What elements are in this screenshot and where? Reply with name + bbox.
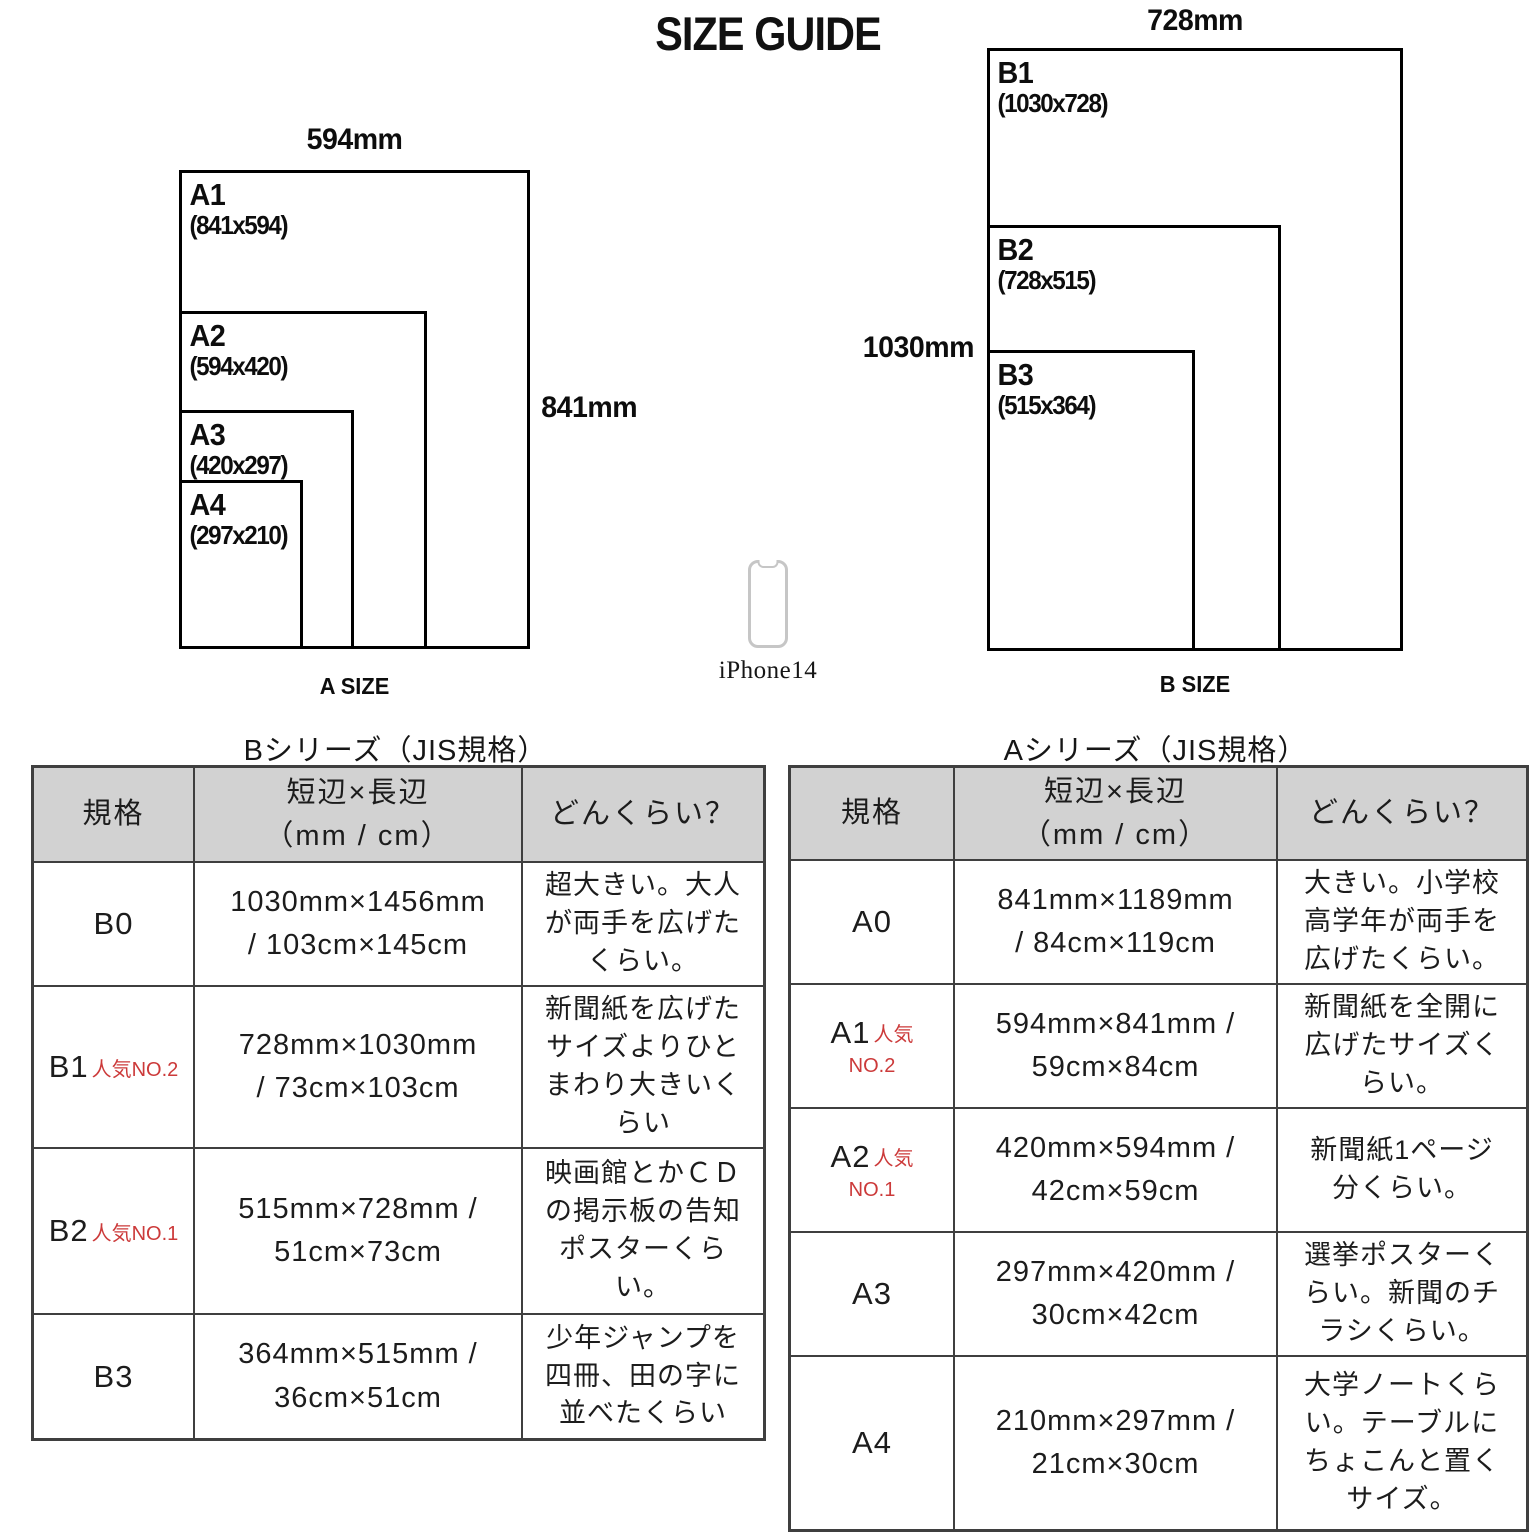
a2-desc-cell: 新聞紙1ページ 分くらい。 bbox=[1278, 1109, 1526, 1233]
a4-desc-cell: 大学ノートくら い。テーブルに ちょこんと置く サイズ。 bbox=[1278, 1357, 1526, 1529]
sheet-a3-name: A3 bbox=[189, 419, 331, 451]
sheet-a4-name: A4 bbox=[189, 489, 284, 521]
a1-badge: 人気 bbox=[873, 1018, 913, 1047]
a2-size-cell: 420mm×594mm / 42cm×59cm bbox=[955, 1109, 1278, 1233]
b2-size-cell: 515mm×728mm / 51cm×73cm bbox=[195, 1149, 523, 1315]
b-series-table: 規格 短辺×長辺 （mm / cm） どんくらい？ B0 1030mm×1456… bbox=[31, 765, 766, 1441]
a-header-spec: 規格 bbox=[791, 768, 955, 861]
b1-size-cell: 728mm×1030mm / 73cm×103cm bbox=[195, 987, 523, 1149]
iphone-notch bbox=[758, 560, 779, 568]
sheet-a2-name: A2 bbox=[189, 320, 399, 352]
a2-badge-line2: NO.1 bbox=[849, 1179, 896, 1202]
a2-code: A2 bbox=[831, 1139, 871, 1175]
b-header-size: 短辺×長辺 （mm / cm） bbox=[195, 768, 523, 863]
a-diagram-caption: A SIZE bbox=[188, 673, 521, 700]
sheet-a3-dims: (420x297) bbox=[189, 451, 331, 480]
iphone-label: iPhone14 bbox=[702, 657, 834, 685]
b3-desc-cell: 少年ジャンプを 四冊、田の字に 並べたくらい bbox=[523, 1315, 763, 1438]
a1-spec-cell: A1人気 NO.2 bbox=[791, 985, 955, 1109]
b-diagram-height-label: 1030mm bbox=[858, 331, 974, 365]
sheet-b3-name: B3 bbox=[997, 359, 1170, 391]
a1-desc-cell: 新聞紙を全開に 広げたサイズく らい。 bbox=[1278, 985, 1526, 1109]
iphone-reference: iPhone14 bbox=[702, 560, 834, 685]
b-table-title: Bシリーズ（JIS規格） bbox=[31, 727, 760, 769]
b0-desc-cell: 超大きい。大人 が両手を広げた くらい。 bbox=[523, 863, 763, 987]
b-header-spec: 規格 bbox=[34, 768, 195, 863]
a-header-desc: どんくらい？ bbox=[1278, 768, 1526, 861]
a1-size-cell: 594mm×841mm / 59cm×84cm bbox=[955, 985, 1278, 1109]
a-diagram-height-label: 841mm bbox=[541, 391, 665, 425]
b1-code: B1 bbox=[49, 1049, 89, 1085]
a3-size-cell: 297mm×420mm / 30cm×42cm bbox=[955, 1233, 1278, 1357]
sheet-a4-label: A4 (297x210) bbox=[182, 483, 292, 556]
sheet-a4-dims: (297x210) bbox=[189, 521, 284, 550]
b3-spec-cell: B3 bbox=[34, 1315, 195, 1438]
sheet-b3-dims: (515x364) bbox=[997, 391, 1170, 420]
a3-spec-cell: A3 bbox=[791, 1233, 955, 1357]
a2-badge: 人気 bbox=[873, 1142, 913, 1171]
b1-badge: 人気NO.2 bbox=[92, 1053, 179, 1082]
sheet-b2-label: B2 (728x515) bbox=[990, 228, 1258, 301]
b0-spec-cell: B0 bbox=[34, 863, 195, 987]
b1-spec-cell: B1人気NO.2 bbox=[34, 987, 195, 1149]
a0-spec-cell: A0 bbox=[791, 861, 955, 985]
a0-desc-cell: 大きい。小学校 高学年が両手を 広げたくらい。 bbox=[1278, 861, 1526, 985]
sheet-b2-dims: (728x515) bbox=[997, 266, 1250, 295]
b0-code: B0 bbox=[94, 906, 134, 942]
sheet-b1-name: B1 bbox=[997, 57, 1363, 89]
b3-size-cell: 364mm×515mm / 36cm×51cm bbox=[195, 1315, 523, 1438]
b3-code: B3 bbox=[94, 1359, 134, 1395]
a0-size-cell: 841mm×1189mm / 84cm×119cm bbox=[955, 861, 1278, 985]
b-size-diagram: B1 (1030x728) B2 (728x515) B3 (515x364) bbox=[987, 48, 1403, 651]
b-header-desc: どんくらい？ bbox=[523, 768, 763, 863]
a2-spec-cell: A2人気 NO.1 bbox=[791, 1109, 955, 1233]
b2-badge: 人気NO.1 bbox=[92, 1217, 179, 1246]
iphone-icon bbox=[748, 560, 788, 648]
sheet-a1-name: A1 bbox=[189, 179, 495, 211]
sheet-a1-label: A1 (841x594) bbox=[182, 173, 503, 246]
b2-spec-cell: B2人気NO.1 bbox=[34, 1149, 195, 1315]
sheet-a3-label: A3 (420x297) bbox=[182, 413, 339, 486]
sheet-a1-dims: (841x594) bbox=[189, 211, 495, 240]
sheet-b1-label: B1 (1030x728) bbox=[990, 51, 1371, 124]
a-diagram-width-label: 594mm bbox=[188, 123, 521, 157]
a4-spec-cell: A4 bbox=[791, 1357, 955, 1529]
a3-desc-cell: 選挙ポスターく らい。新聞のチ ラシくらい。 bbox=[1278, 1233, 1526, 1357]
a0-code: A0 bbox=[852, 904, 892, 940]
a4-size-cell: 210mm×297mm / 21cm×30cm bbox=[955, 1357, 1278, 1529]
b0-size-cell: 1030mm×1456mm / 103cm×145cm bbox=[195, 863, 523, 987]
a1-badge-line2: NO.2 bbox=[849, 1055, 896, 1078]
sheet-a2-dims: (594x420) bbox=[189, 352, 399, 381]
b2-code: B2 bbox=[49, 1213, 89, 1249]
sheet-a4: A4 (297x210) bbox=[179, 480, 303, 649]
a-table-title: Aシリーズ（JIS規格） bbox=[788, 727, 1523, 769]
b1-desc-cell: 新聞紙を広げた サイズよりひと まわり大きいく らい bbox=[523, 987, 763, 1149]
a-series-table: 規格 短辺×長辺 （mm / cm） どんくらい？ A0 841mm×1189m… bbox=[788, 765, 1529, 1532]
a4-code: A4 bbox=[852, 1425, 892, 1461]
sheet-b3-label: B3 (515x364) bbox=[990, 353, 1178, 426]
b2-desc-cell: 映画館とかＣＤ の掲示板の告知 ポスターくら い。 bbox=[523, 1149, 763, 1315]
a-size-diagram: A1 (841x594) A2 (594x420) A3 (420x297) A… bbox=[179, 170, 530, 649]
sheet-b1-dims: (1030x728) bbox=[997, 89, 1363, 118]
sheet-a2-label: A2 (594x420) bbox=[182, 314, 407, 387]
a1-code: A1 bbox=[831, 1015, 871, 1051]
a3-code: A3 bbox=[852, 1276, 892, 1312]
sheet-b3: B3 (515x364) bbox=[987, 350, 1195, 651]
sheet-b2-name: B2 bbox=[997, 234, 1250, 266]
b-diagram-caption: B SIZE bbox=[997, 671, 1392, 698]
b-diagram-width-label: 728mm bbox=[997, 4, 1392, 38]
a-header-size: 短辺×長辺 （mm / cm） bbox=[955, 768, 1278, 861]
